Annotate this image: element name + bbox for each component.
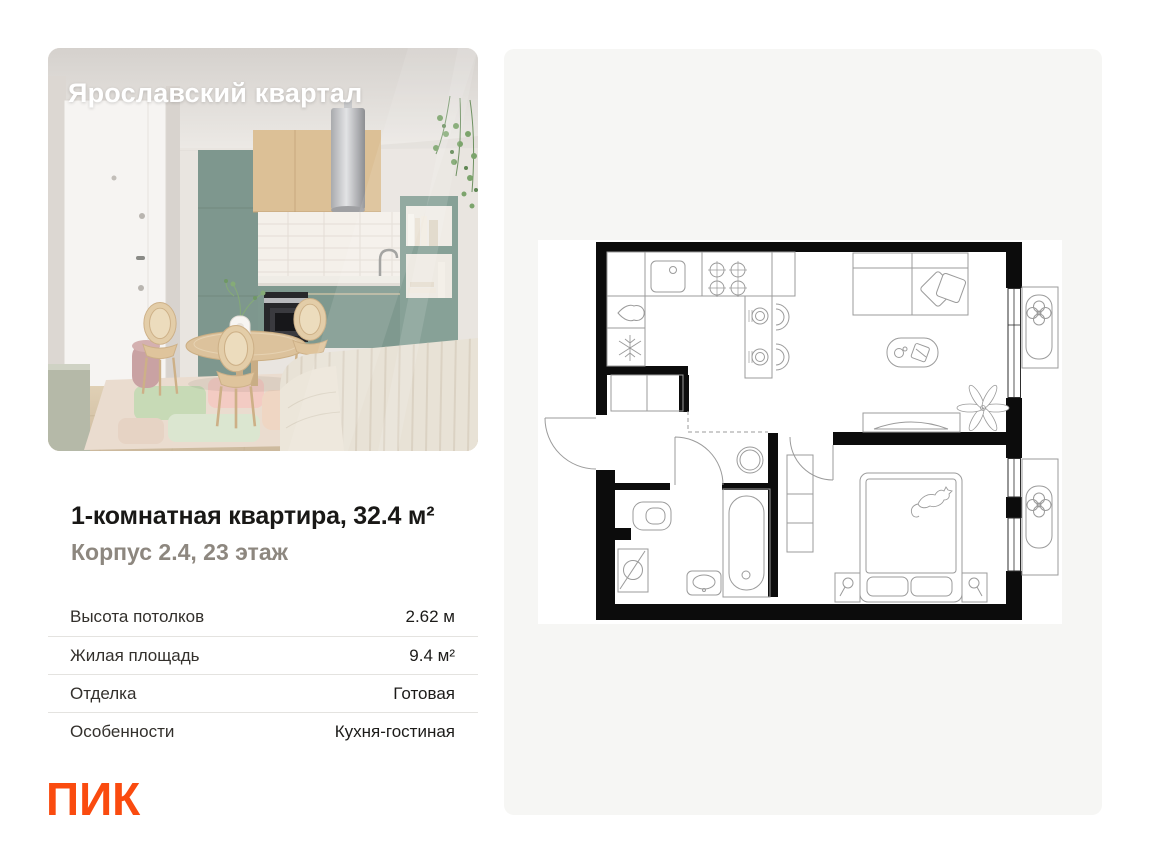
low-cabinet xyxy=(48,364,90,451)
range-hood xyxy=(331,100,365,214)
detail-value: Кухня-гостиная xyxy=(335,722,455,742)
detail-row-finishing: Отделка Готовая xyxy=(48,674,478,712)
pik-logo: ПИК xyxy=(46,772,140,826)
floor-plan xyxy=(538,240,1062,624)
listing-page: { "page": { "background": "#ffffff" }, "… xyxy=(0,0,1150,863)
project-name: Ярославский квартал xyxy=(68,78,362,109)
detail-value: Готовая xyxy=(393,684,455,704)
detail-value: 9.4 м² xyxy=(409,646,455,666)
listing-subtitle: Корпус 2.4, 23 этаж xyxy=(71,539,288,566)
details-table: Высота потолков 2.62 м Жилая площадь 9.4… xyxy=(48,598,478,750)
detail-value: 2.62 м xyxy=(406,607,456,627)
floor-plan-card xyxy=(504,49,1102,815)
detail-row-features: Особенности Кухня-гостиная xyxy=(48,712,478,750)
detail-label: Особенности xyxy=(70,722,174,742)
detail-row-ceiling-height: Высота потолков 2.62 м xyxy=(48,598,478,636)
detail-row-living-area: Жилая площадь 9.4 м² xyxy=(48,636,478,674)
detail-label: Высота потолков xyxy=(70,607,204,627)
detail-label: Отделка xyxy=(70,684,136,704)
listing-title: 1-комнатная квартира, 32.4 м² xyxy=(71,502,434,531)
detail-label: Жилая площадь xyxy=(70,646,199,666)
apartment-photo-card: Ярославский квартал xyxy=(48,48,478,451)
